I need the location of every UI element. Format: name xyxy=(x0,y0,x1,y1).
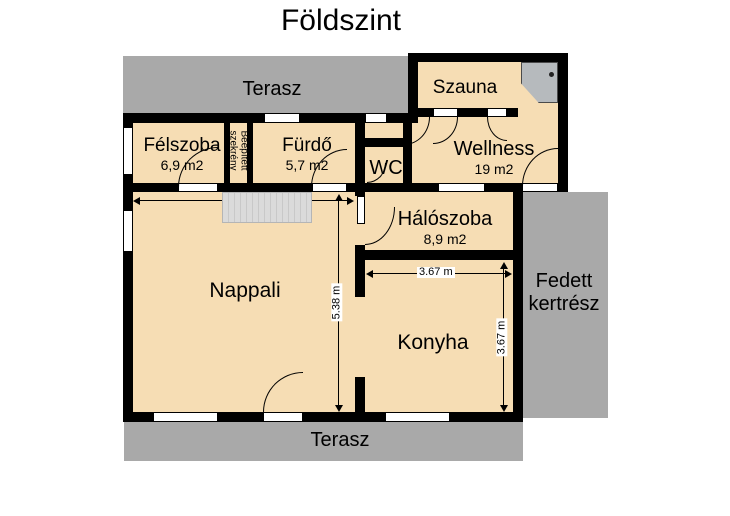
window-konyha-bottom xyxy=(385,412,450,422)
wall-mid-5 xyxy=(558,183,568,192)
label-fedett-kertresz: Fedett kertrész xyxy=(518,270,610,316)
page-title: Földszint xyxy=(246,4,436,39)
label-terasz-bottom: Terasz xyxy=(270,429,410,452)
wellness-name: Wellness xyxy=(424,138,564,161)
shower-drain-dot xyxy=(549,72,554,77)
door-entry-top xyxy=(365,113,387,123)
door-nappali-bottom xyxy=(263,412,303,422)
haloszoba-name: Hálószoba xyxy=(370,208,520,231)
label-furdo: Fürdő 5,7 m2 xyxy=(242,135,372,173)
wall-sauna-top xyxy=(408,53,568,62)
furdo-area: 5,7 m2 xyxy=(242,157,372,173)
wall-divider-lower xyxy=(355,377,365,412)
floor-plan: Földszint xyxy=(0,0,730,516)
window-wellness-bottom xyxy=(438,183,485,192)
label-konyha: Konyha xyxy=(363,331,503,355)
dim-arrow xyxy=(335,194,343,201)
wall-sauna-bottom-3 xyxy=(507,108,518,117)
door-szauna-2-threshold xyxy=(487,108,507,117)
wall-bedroom-kitchen xyxy=(355,250,523,260)
dim-arrow xyxy=(500,262,508,269)
dim-label-nappali-height: 5.38 m xyxy=(331,284,342,322)
dim-arrow xyxy=(335,405,343,412)
door-haloszoba-threshold xyxy=(357,196,365,224)
window-furdo-top xyxy=(264,113,300,123)
wall-mid-2 xyxy=(218,183,312,192)
furdo-name: Fürdő xyxy=(242,135,372,157)
window-nappali-bottom xyxy=(153,412,218,422)
dim-arrow xyxy=(500,405,508,412)
dim-arrow xyxy=(347,197,354,205)
dim-arrow xyxy=(133,197,140,205)
closet-line2: szekrény xyxy=(228,121,239,181)
window-nappali-left xyxy=(123,210,133,252)
label-wc: WC xyxy=(361,157,411,180)
dim-arrow xyxy=(366,270,373,278)
door-szauna-1-threshold xyxy=(433,108,458,117)
dim-label-konyha-width: 3.67 m xyxy=(417,267,455,278)
wall-sauna-bottom-2 xyxy=(458,108,487,117)
staircase xyxy=(222,192,312,223)
label-szauna: Szauna xyxy=(400,77,530,99)
label-nappali: Nappali xyxy=(175,279,315,303)
label-wellness: Wellness 19 m2 xyxy=(424,138,564,177)
label-terasz-top: Terasz xyxy=(202,78,342,101)
fedett-line2: kertrész xyxy=(518,293,610,316)
wall-mid-4 xyxy=(485,183,522,192)
fedett-line1: Fedett xyxy=(518,270,610,293)
dim-arrow xyxy=(505,270,512,278)
wellness-area: 19 m2 xyxy=(424,161,564,177)
wall-mid-1 xyxy=(123,183,178,192)
haloszoba-area: 8,9 m2 xyxy=(370,231,520,247)
label-haloszoba: Hálószoba 8,9 m2 xyxy=(370,208,520,247)
